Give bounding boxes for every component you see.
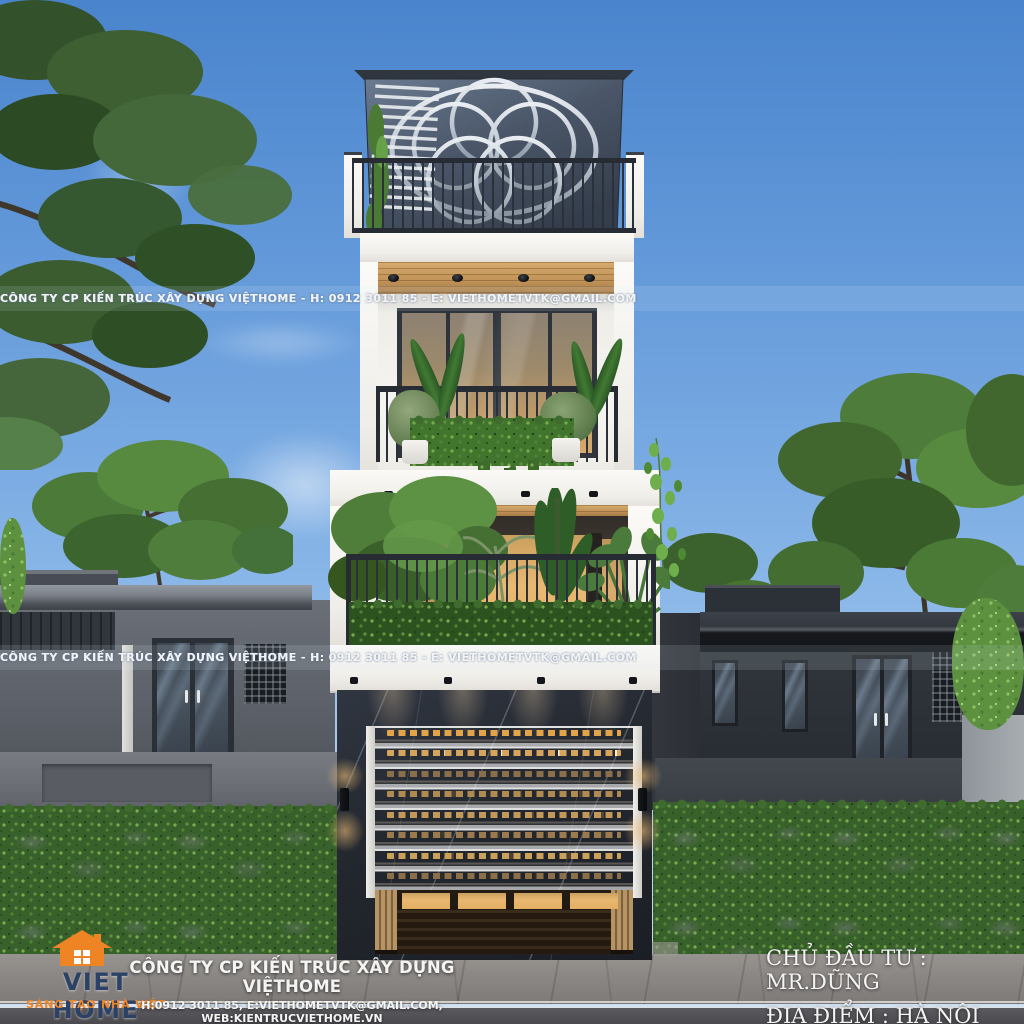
watermark-text: CÔNG TY CP KIẾN TRÚC XÂY DỰNG VIỆTHOME -… xyxy=(0,645,637,670)
door-perforation-row xyxy=(387,791,621,797)
watermark-band-bottom: CÔNG TY CP KIẾN TRÚC XÂY DỰNG VIỆTHOME -… xyxy=(0,645,1024,670)
architectural-render: CÔNG TY CP KIẾN TRÚC XÂY DỰNG VIỆTHOME -… xyxy=(0,0,1024,1024)
roof-railing-balusters xyxy=(352,163,636,231)
ceiling-downlight xyxy=(388,274,399,282)
parapet-downlight xyxy=(350,677,358,684)
plant-pot xyxy=(552,438,580,462)
project-location: ĐỊA ĐIỂM : HÀ NỘI xyxy=(766,1004,1016,1024)
wall-lamp xyxy=(638,788,647,811)
project-info: CHỦ ĐẦU TƯ : MR.DŨNG ĐỊA ĐIỂM : HÀ NỘI xyxy=(766,946,1016,1024)
door-perforation-row xyxy=(387,853,621,859)
door-perforation-row xyxy=(387,730,621,736)
hanging-vine-right xyxy=(626,438,698,590)
door-perforation-row xyxy=(387,771,621,777)
terrace-hedge xyxy=(349,602,653,650)
garage-lit-panel xyxy=(570,893,618,909)
ceiling-downlight xyxy=(518,274,529,282)
garage-door-rail xyxy=(366,726,375,898)
garage-lit-panel xyxy=(402,893,450,909)
company-name: CÔNG TY CP KIẾN TRÚC XÂY DỰNG VIỆTHOME xyxy=(122,958,462,996)
watermark-band-top: CÔNG TY CP KIẾN TRÚC XÂY DỰNG VIỆTHOME -… xyxy=(0,286,1024,311)
ceiling-downlight xyxy=(452,274,463,282)
garage-roller-door xyxy=(375,726,633,890)
house-icon xyxy=(52,932,112,966)
floor3-railing-post xyxy=(614,386,618,462)
garage-lit-panel xyxy=(514,893,562,909)
lamp-glow xyxy=(326,810,364,852)
door-perforation-row xyxy=(387,873,621,879)
door-perforation-row xyxy=(387,750,621,756)
lamp-glow xyxy=(624,810,662,852)
parapet-downlight xyxy=(444,677,452,684)
house-icon-window xyxy=(74,950,90,964)
wall-lamp xyxy=(340,788,349,811)
ceiling-downlight xyxy=(584,274,595,282)
parapet-downlight xyxy=(537,677,545,684)
floor3-railing-post xyxy=(376,386,380,462)
door-perforation-row xyxy=(387,812,621,818)
house-icon-roof xyxy=(52,930,112,948)
project-investor: CHỦ ĐẦU TƯ : MR.DŨNG xyxy=(766,946,1016,994)
company-contact: H:0912 3011 85, E:VIETHOMETVTK@GMAIL.COM… xyxy=(122,999,462,1024)
parapet-downlight xyxy=(629,677,637,684)
watermark-text: CÔNG TY CP KIẾN TRÚC XÂY DỰNG VIỆTHOME -… xyxy=(0,286,637,311)
door-perforation-row xyxy=(387,832,621,838)
house-icon-body xyxy=(60,948,104,966)
company-info: CÔNG TY CP KIẾN TRÚC XÂY DỰNG VIỆTHOME H… xyxy=(122,958,462,1024)
footer: VIET HOME SÁNG TẠO NHÀ VIỆT CÔNG TY CP K… xyxy=(0,930,1024,1024)
main-house xyxy=(0,0,1024,1024)
roof-parapet xyxy=(360,233,634,264)
garage-lit-panel xyxy=(458,893,506,909)
